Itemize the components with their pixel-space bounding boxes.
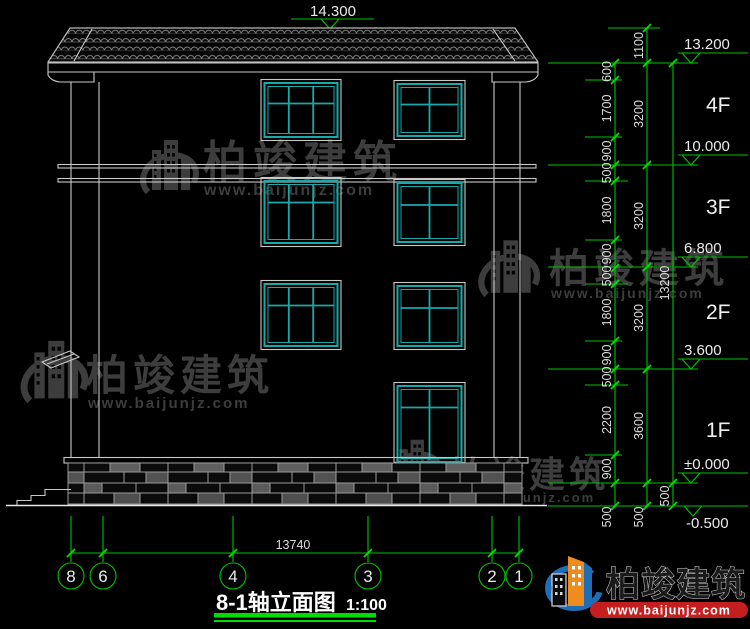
window-4f-right <box>394 81 465 140</box>
title-text: 8-1轴立面图 <box>216 590 336 615</box>
dim-value: 13200 <box>658 266 672 301</box>
window-2f-right <box>394 283 465 350</box>
dim-value: 1700 <box>600 95 614 123</box>
dim-value: 500 <box>600 367 614 388</box>
dim-value: 900 <box>600 244 614 265</box>
dim-value: 1800 <box>600 299 614 327</box>
window-2f-left <box>261 281 341 350</box>
dim-value: 1800 <box>600 197 614 225</box>
dim-value: 3600 <box>632 412 646 440</box>
axis-bubbles: 8 6 4 3 2 1 <box>58 563 532 589</box>
dim-value: 3200 <box>632 202 646 230</box>
dim-value: 1100 <box>632 32 646 59</box>
axis-bubble-label: 4 <box>228 567 237 586</box>
ridge-elevation-value: 14.300 <box>310 3 356 20</box>
brand-logo: 柏竣建筑 www.baijunjz.com <box>548 554 748 618</box>
elevation-marker-f1: ±0.000 <box>678 456 748 483</box>
brand-url-text: www.baijunjz.com <box>606 604 731 618</box>
elevation-marker-eave: 13.200 <box>678 36 748 63</box>
watermark-url: www.baijunjz.com <box>550 285 704 301</box>
brand-logo-text: 柏竣建筑 <box>606 565 746 604</box>
elevation-value: 13.200 <box>684 36 730 53</box>
window-3f-right <box>394 180 465 246</box>
dim-value: 900 <box>600 141 614 162</box>
elevation-value: 6.800 <box>684 240 722 257</box>
title-underline-thick <box>214 613 376 618</box>
dim-value: 2200 <box>600 406 614 434</box>
axis-bubble-label: 2 <box>487 567 496 586</box>
dim-value: 500 <box>658 486 672 507</box>
watermark-url: www.baijunjz.com <box>87 395 249 412</box>
axis-bubble-label: 8 <box>66 567 75 586</box>
dim-value: 3200 <box>632 304 646 332</box>
dimension-extension-lines <box>548 28 698 506</box>
floor-label-1f: 1F <box>706 419 731 442</box>
title-underline-thin <box>214 620 376 622</box>
total-width-dimension: 13740 <box>276 538 311 552</box>
axis-bubble-label: 6 <box>98 567 107 586</box>
title-scale: 1:100 <box>346 597 387 614</box>
roof <box>48 28 538 62</box>
watermark-brand: 柏竣建筑 <box>86 352 274 399</box>
stone-base <box>64 458 528 506</box>
drawing-title: 8-1轴立面图 1:100 <box>214 590 387 622</box>
entry-steps <box>17 490 71 506</box>
axis-bubble-label: 1 <box>514 567 523 586</box>
dim-value: 3200 <box>632 100 646 128</box>
elevation-value: 10.000 <box>684 138 730 155</box>
elevation-value: 3.600 <box>684 342 722 359</box>
elevation-marker-ground: -0.500 <box>648 506 748 532</box>
floor-label-3f: 3F <box>706 196 731 219</box>
dim-value: 500 <box>632 507 646 528</box>
dim-value: 900 <box>600 459 614 480</box>
dimension-chain-total-labels: 13200 500 <box>658 266 672 507</box>
elevation-drawing: 柏竣建筑 www.baijunjz.com 柏竣建筑 www.baijunjz.… <box>0 0 750 629</box>
axis-bubble-label: 3 <box>363 567 372 586</box>
cad-elevation-canvas: 柏竣建筑 www.baijunjz.com 柏竣建筑 www.baijunjz.… <box>0 0 750 629</box>
watermark-brand: 柏竣建筑 <box>203 138 403 187</box>
window-4f-left <box>261 80 341 141</box>
dim-value: 500 <box>600 507 614 528</box>
dim-value: 500 <box>600 163 614 184</box>
dim-value: 600 <box>600 61 614 82</box>
floor-label-2f: 2F <box>706 301 731 324</box>
elevation-marker-f2: 3.600 <box>678 342 748 369</box>
dim-value: 900 <box>600 345 614 366</box>
elevation-value: ±0.000 <box>684 456 730 473</box>
elevation-marker-f4: 10.000 <box>678 138 748 165</box>
watermark-left: 柏竣建筑 www.baijunjz.com <box>24 341 274 412</box>
elevation-value: -0.500 <box>686 515 729 532</box>
dim-value: 500 <box>600 266 614 287</box>
floor-label-4f: 4F <box>706 94 731 117</box>
ridge-elevation-marker: 14.300 <box>291 3 374 29</box>
